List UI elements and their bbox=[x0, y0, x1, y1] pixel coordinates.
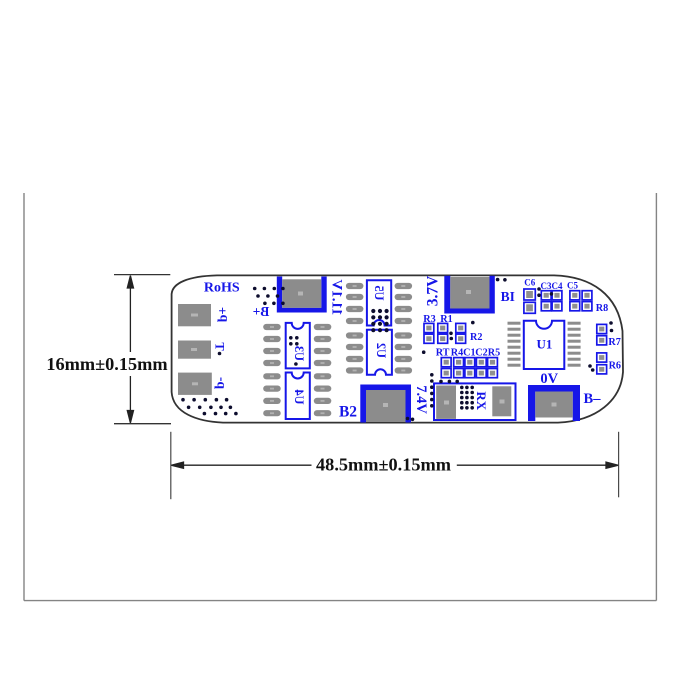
svg-text:BI: BI bbox=[501, 289, 515, 304]
svg-text:7.4V: 7.4V bbox=[413, 385, 429, 414]
svg-text:B+: B+ bbox=[253, 304, 270, 319]
svg-text:B–: B– bbox=[584, 391, 602, 407]
svg-text:b+: b+ bbox=[215, 307, 230, 322]
svg-text:C6: C6 bbox=[524, 278, 535, 288]
svg-text:U3: U3 bbox=[292, 346, 306, 361]
svg-text:RT: RT bbox=[436, 348, 450, 359]
svg-text:C4: C4 bbox=[552, 281, 563, 291]
svg-text:R6: R6 bbox=[609, 361, 621, 372]
svg-text:3.7V: 3.7V bbox=[425, 275, 442, 306]
svg-text:T: T bbox=[212, 342, 226, 351]
svg-text:B2: B2 bbox=[339, 404, 357, 421]
svg-text:C2: C2 bbox=[475, 348, 487, 359]
svg-text:R2: R2 bbox=[470, 332, 482, 343]
svg-text:U1: U1 bbox=[537, 336, 553, 351]
svg-text:R1: R1 bbox=[440, 314, 452, 325]
svg-text:11.1V: 11.1V bbox=[328, 279, 344, 315]
svg-text:R4: R4 bbox=[451, 348, 463, 359]
svg-text:b-: b- bbox=[212, 377, 227, 389]
svg-text:RoHS: RoHS bbox=[204, 281, 240, 296]
svg-text:R5: R5 bbox=[488, 348, 500, 359]
svg-text:48.5mm±0.15mm: 48.5mm±0.15mm bbox=[316, 455, 451, 475]
svg-text:RX: RX bbox=[474, 391, 489, 410]
svg-text:C3: C3 bbox=[541, 281, 552, 291]
svg-text:U5: U5 bbox=[372, 285, 386, 300]
svg-text:R7: R7 bbox=[608, 337, 620, 348]
svg-text:C5: C5 bbox=[567, 281, 578, 291]
svg-text:U2: U2 bbox=[374, 343, 388, 358]
svg-text:0V: 0V bbox=[540, 371, 558, 387]
svg-text:C1: C1 bbox=[463, 348, 475, 359]
svg-text:U4: U4 bbox=[292, 389, 306, 405]
svg-text:R8: R8 bbox=[596, 303, 608, 314]
svg-text:16mm±0.15mm: 16mm±0.15mm bbox=[46, 354, 167, 374]
svg-text:R3: R3 bbox=[423, 314, 435, 325]
